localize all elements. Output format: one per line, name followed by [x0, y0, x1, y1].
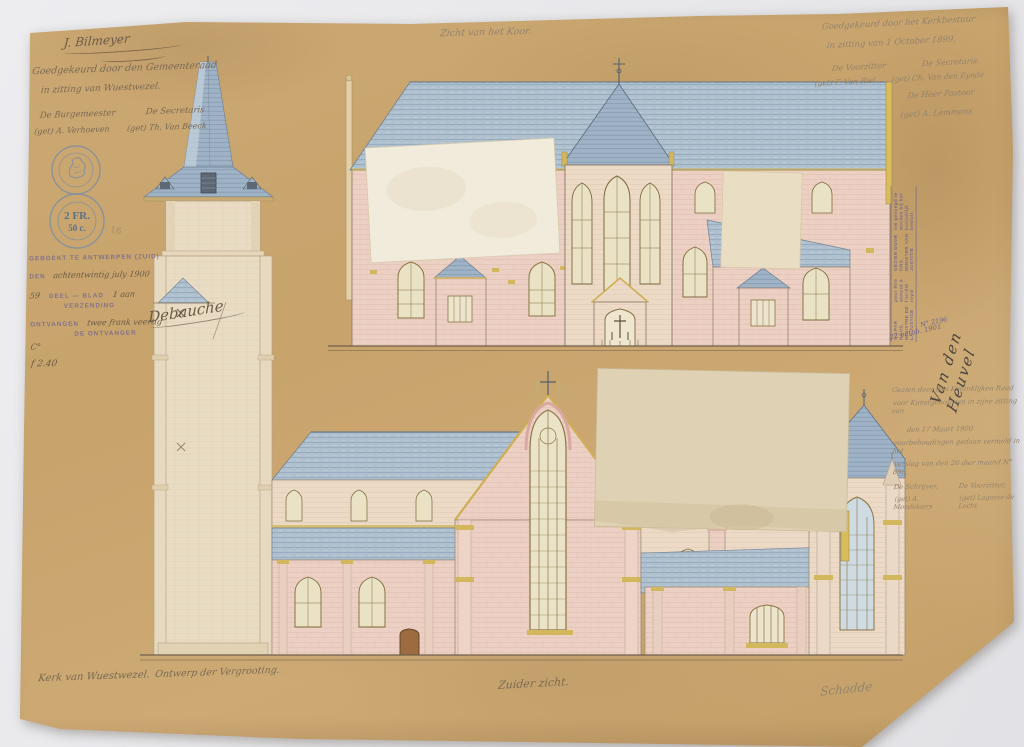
role-title: De Voorzitter, [958, 481, 1006, 490]
gothic-window [286, 490, 302, 521]
signature-text: (get) A. Lemmens [900, 107, 973, 120]
note-line: den 17 Maart 1900 [906, 425, 973, 434]
sheet-title-bottom-center: Zuider zicht. [498, 670, 570, 693]
scan-background: { "titles": { "top_center": "Zicht van h… [0, 0, 1024, 747]
approval-line: in zitting van 1 October 1899. [826, 34, 956, 51]
stamp-handwriting: 59 [29, 291, 40, 300]
note-line: voorbehoudingen gedaan vermeld in het [892, 437, 1024, 455]
minister-approval-stamp: VU PAR NOUS, MINISTRE DE LA JUSTICE pour… [891, 186, 917, 342]
stamp-line: ONTVANGEN [30, 321, 79, 329]
stamp-value: 50 c. [68, 223, 86, 233]
stamp-value: 2 FR. [64, 210, 90, 222]
tower-buttress [260, 256, 272, 655]
lion-emblem [69, 158, 85, 178]
municipal-approval-note: Goedgekeurd door den Gemeenteraad in zit… [32, 51, 275, 136]
title-text: Zicht van het Koor. [439, 26, 532, 39]
gothic-window [351, 490, 367, 521]
stamp-line: GEZIEN DOOR ONS, MINISTER VAN JUSTITIE [893, 232, 915, 272]
stamp-line: DEN [29, 273, 45, 280]
stamp-handwriting: C° [30, 342, 41, 351]
barred-window [750, 605, 784, 643]
signature-text: (get) Lagasse de Locht [958, 493, 1024, 510]
role-title: De Schrijver, [893, 482, 939, 491]
church-board-approval-note: Goedgekeurd door het Kerkbestuur in zitt… [795, 4, 1019, 126]
role-title: De Burgemeester [39, 108, 116, 121]
side-door [400, 629, 419, 655]
stamp-amount: f 2.40 [30, 359, 58, 369]
gable-cross-finial [540, 371, 556, 395]
role-title: De Voorzitter [832, 61, 887, 73]
approval-line: Goedgekeurd door het Kerkbestuur [821, 14, 975, 32]
note-line: Gezien door den Koninklijken Raad [892, 384, 1015, 394]
note-line: verslag van den 26 dier maand N° 898. [892, 458, 1024, 476]
role-title: De Secretaris [921, 56, 977, 68]
signature-text: (get) A. Mondelaers [893, 494, 952, 511]
approval-line: De Heer Pastoor [907, 87, 975, 100]
stamp-line: om gevoegd te worden bij het koninklijk … [893, 188, 915, 230]
note-line: voor Kunstgebouwen in zijne zitting van [891, 397, 1023, 415]
revenue-stamp-value: 2 FR. 50 c. [48, 192, 106, 250]
stamp-handwriting: 1 aan [112, 290, 136, 299]
stamp-line: DEEL — BLAD [49, 292, 104, 300]
approval-line: in zitting van Wuestwezel. [40, 82, 161, 96]
gothic-window [416, 490, 432, 521]
paper-patch [594, 368, 849, 535]
royal-council-note: Gezien door den Koninklijken Raad voor K… [892, 375, 1024, 511]
stamp-line: DE ONTVANGER [74, 329, 200, 338]
stamp-handwriting: achtentwintig july 1900 [53, 269, 151, 280]
title-text: Zuider zicht. [497, 675, 569, 692]
signature-text: (get) Ch. Van den Eynde [891, 70, 984, 84]
revenue-stamp-lion [50, 144, 102, 196]
role-title: De Secretaris [145, 105, 205, 117]
pencil-number: 16 [109, 225, 122, 237]
stamp-line: pour être annexé à l'arrêté royal [893, 273, 915, 301]
sheet-title-top: Zicht van het Koor. [440, 19, 532, 40]
bottom-elevation-drawing [133, 55, 910, 665]
annex-roof [641, 547, 833, 593]
tower-upper-shaft [166, 201, 260, 253]
approval-line: Goedgekeurd door den Gemeenteraad [31, 60, 217, 78]
signature-text: (get) F. Van Riel [814, 76, 875, 88]
